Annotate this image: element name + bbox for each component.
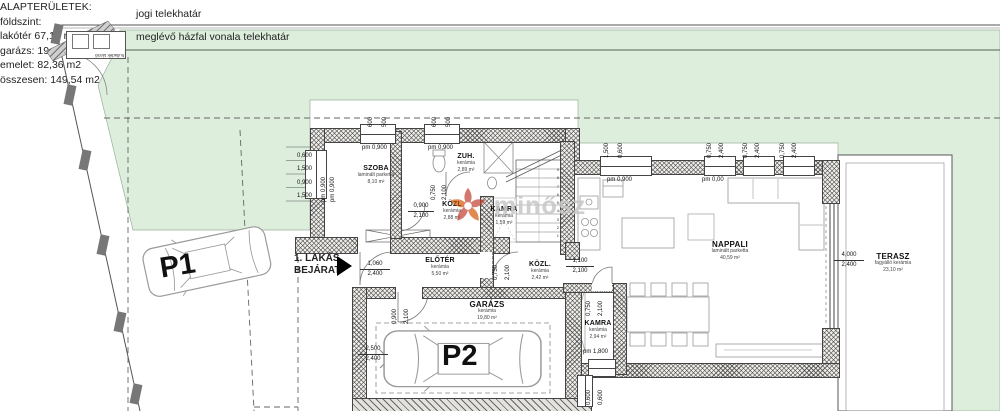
room-label-szoba: SZOBA laminált parketta 8,10 m² xyxy=(358,165,395,185)
glass-door xyxy=(826,202,834,328)
dim-label: pm 0,900 xyxy=(362,145,387,151)
room-label-nappali: NAPPALI laminált parketta 40,59 m² xyxy=(712,241,749,261)
dim-label: 0,600 xyxy=(598,390,604,405)
sofa xyxy=(688,178,824,250)
dim-label: 2,400 xyxy=(755,143,761,158)
dim-pair: 1,100 2,100 xyxy=(566,258,594,275)
entrance-arrow-icon xyxy=(337,256,352,276)
dim-label: pm 0,900 xyxy=(607,177,632,183)
hall-door-opening xyxy=(480,252,492,278)
floor-plan-canvas: jogi telekhatár meglévő házfal vonala te… xyxy=(0,0,1000,411)
dim-label: 0,750 xyxy=(707,143,713,158)
dim-label: 600 xyxy=(368,117,374,127)
dim-label: 0,600 xyxy=(586,390,592,405)
wall-garage-top-b xyxy=(422,287,567,299)
dim-label: 0,750 xyxy=(780,143,786,158)
dim-label: 2,100 xyxy=(442,185,448,200)
dim-label: 0,600 xyxy=(288,153,312,159)
wall-stair-right xyxy=(560,141,575,255)
dim-label: pm 0,00 xyxy=(702,177,724,183)
window-bedroom-1 xyxy=(360,124,396,144)
dining-set xyxy=(627,283,709,346)
parking-spot-p1: P1 xyxy=(158,247,198,285)
pantry-door-opening xyxy=(592,283,612,291)
wall-garage-bottom xyxy=(352,398,592,411)
dim-pair: 1,060 2,400 xyxy=(360,261,390,278)
room-label-zuh: ZUH. kerámia 2,89 m² xyxy=(457,153,475,173)
room-label-kozl1: KÖZL kerámia 2,88 m² xyxy=(442,201,462,221)
waste-storage-box: hulladék tároló xyxy=(66,31,126,59)
dim-label: 500 xyxy=(382,117,388,127)
window-livingroom-4 xyxy=(783,156,815,176)
room-label-kamra2: KAMRA kerámia 2,94 m² xyxy=(584,320,611,340)
room-label-eloter: ELŐTÉR kerámia 5,50 m² xyxy=(425,257,455,277)
legal-boundary-label: jogi telekhatár xyxy=(136,8,201,20)
dim-label: 1,500 xyxy=(288,193,312,199)
dim-label: 0,900 xyxy=(392,309,398,324)
dim-pair: 4,000 2,400 xyxy=(834,252,864,269)
dim-label: 2,100 xyxy=(505,265,511,280)
dim-label: 0,750 xyxy=(743,143,749,158)
room-label-kozl2: KÖZL. kerámia 2,42 m² xyxy=(529,261,551,281)
dim-label: 2,100 xyxy=(598,301,604,316)
dim-label: 1,500 xyxy=(604,143,610,158)
dim-label: 1,500 xyxy=(288,166,312,172)
dim-label: 600 xyxy=(432,117,438,127)
room-label-garazs: GARÁZS kerámia 19,80 m² xyxy=(470,301,505,321)
existing-wall-label: meglévő házfal vonala telekhatár xyxy=(136,31,290,43)
window-livingroom-3 xyxy=(743,156,775,176)
dim-pair: 0,900 2,100 xyxy=(408,203,434,220)
dim-label: 0,900 xyxy=(288,180,312,186)
dim-label: 0,600 xyxy=(618,143,624,158)
window-livingroom-1 xyxy=(600,156,652,176)
room-label-kamra1: KAMRA kerámia 1,59 m² xyxy=(490,206,517,226)
waste-bin xyxy=(72,34,89,49)
dim-label: 2,400 xyxy=(719,143,725,158)
entrance-label: 1. LAKÁS BEJÁRAT xyxy=(294,253,340,277)
waste-bin xyxy=(93,34,110,49)
room-label-terasz: TERASZ fagyálló kerámia 23,10 m² xyxy=(875,253,911,273)
dim-pair: 2,500 2,400 xyxy=(358,346,388,363)
wall-right-upper xyxy=(822,160,840,204)
window-livingroom-2 xyxy=(704,156,736,176)
stair-step-numbers: 9 8 7 6 5 4 3 2 1 xyxy=(551,166,559,241)
wall-entrance-left xyxy=(295,237,358,254)
dim-label: 0,750 xyxy=(431,185,437,200)
wall-bedroom-divider xyxy=(390,131,402,239)
dim-label: 2,400 xyxy=(792,143,798,158)
dim-label: 0,750 xyxy=(493,265,499,280)
dim-label: pm 0,900 xyxy=(330,177,336,202)
waste-storage-label: hulladék tároló xyxy=(95,53,124,58)
dim-label: pm 1,800 xyxy=(583,349,608,355)
dim-label: 0,750 xyxy=(586,301,592,316)
dim-label: pm 0,900 xyxy=(321,177,327,202)
dim-label: 2,100 xyxy=(404,309,410,324)
parking-spot-p2: P2 xyxy=(442,340,477,373)
window-bedroom-2 xyxy=(424,124,460,144)
dim-label: pm 0,900 xyxy=(428,145,453,151)
terrace-outline xyxy=(838,155,952,411)
kitchen-counter xyxy=(578,178,674,250)
dim-label: 500 xyxy=(446,117,452,127)
sideboard xyxy=(716,344,826,357)
